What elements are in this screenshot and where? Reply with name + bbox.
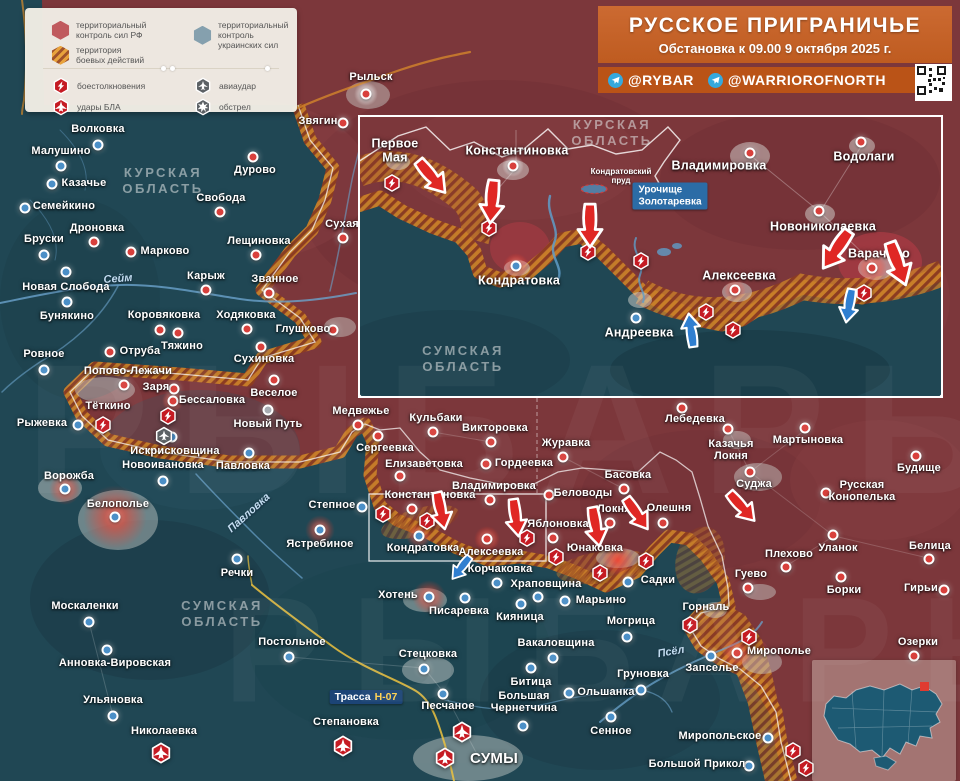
town-marker	[730, 285, 741, 296]
attack-arrow-red	[814, 224, 857, 277]
map-subtitle: Обстановка к 09.00 9 октября 2025 г.	[659, 41, 892, 56]
title-banner: РУССКОЕ ПРИГРАНИЧЬЕ Обстановка к 09.00 9…	[598, 6, 952, 63]
legend-item: территориальный контроль сил РФ	[51, 20, 146, 40]
telegram-channel[interactable]: @RYBAR	[608, 72, 694, 88]
legend-item: удары БЛА	[51, 97, 121, 117]
attack-arrow-red	[569, 201, 610, 252]
legend-item-label: удары БЛА	[77, 102, 121, 112]
legend-item-label: территориальный контроль украинских сил	[218, 20, 297, 51]
legend-item-label: боестолкновения	[77, 81, 145, 91]
legend-item: обстрел	[193, 97, 251, 117]
telegram-icon	[608, 73, 623, 88]
town-marker	[745, 148, 756, 159]
telegram-channel[interactable]: @WARRIOROFNORTH	[708, 72, 886, 88]
legend-item-label: территориальный контроль сил РФ	[76, 20, 146, 40]
channel-handle: @WARRIOROFNORTH	[728, 72, 886, 88]
hex-ua-icon	[193, 26, 212, 45]
legend-air-icon	[193, 76, 213, 96]
oblast-label: КУРСКАЯ ОБЛАСТЬ	[571, 117, 652, 150]
counter-arrow-blue	[675, 310, 707, 350]
combat-icon	[723, 320, 744, 341]
legend-item: территория боевых действий	[51, 45, 144, 65]
map-canvas: КУРСКАЯ ОБЛАСТЬСУМСКАЯ ОБЛАСТЬСеймПсёлПа…	[0, 0, 960, 781]
counter-arrow-blue	[833, 286, 865, 326]
combat-icon	[631, 251, 652, 272]
telegram-icon	[708, 73, 723, 88]
legend-item-label: территория боевых действий	[76, 45, 144, 65]
map-title: РУССКОЕ ПРИГРАНИЧЬЕ	[629, 14, 921, 38]
town-marker	[508, 161, 519, 172]
legend-item-label: авиаудар	[219, 81, 256, 91]
telegram-banner: @RYBAR @WARRIOROFNORTH	[598, 67, 928, 93]
town-marker	[814, 206, 825, 217]
qr-code[interactable]	[915, 64, 952, 101]
town-label: Владимировка	[671, 159, 766, 173]
sumy-region-marker	[920, 682, 929, 691]
town-label: Алексеевка	[702, 269, 776, 283]
town-label: Константиновка	[465, 144, 568, 158]
town-label: Андреевка	[605, 326, 674, 340]
ukraine-locator-map	[812, 660, 956, 781]
legend-divider	[43, 68, 279, 69]
attack-arrow-red	[471, 177, 512, 228]
hex-battle-icon	[51, 46, 70, 65]
channel-handle: @RYBAR	[628, 72, 694, 88]
town-marker	[511, 261, 522, 272]
hex-rf-icon	[51, 21, 70, 40]
legend-panel: территориальный контроль сил РФтерритори…	[25, 8, 297, 112]
legend-shell-icon	[193, 97, 213, 117]
attack-arrow-red	[876, 238, 919, 291]
town-marker	[631, 313, 642, 324]
legend-combat-icon	[51, 76, 71, 96]
attack-arrow-red	[412, 153, 452, 201]
town-marker	[856, 137, 867, 148]
legend-item-label: обстрел	[219, 102, 251, 112]
legend-item: территориальный контроль украинских сил	[193, 20, 297, 51]
legend-item: авиаудар	[193, 76, 256, 96]
legend-drone-icon	[51, 97, 71, 117]
town-label: Водолаги	[833, 150, 894, 164]
town-label: Кондратовка	[478, 274, 560, 288]
legend-item: боестолкновения	[51, 76, 145, 96]
oblast-label: СУМСКАЯ ОБЛАСТЬ	[422, 343, 504, 376]
tract-callout: Урочище Золотаревка	[632, 183, 707, 210]
combat-icon	[382, 173, 403, 194]
